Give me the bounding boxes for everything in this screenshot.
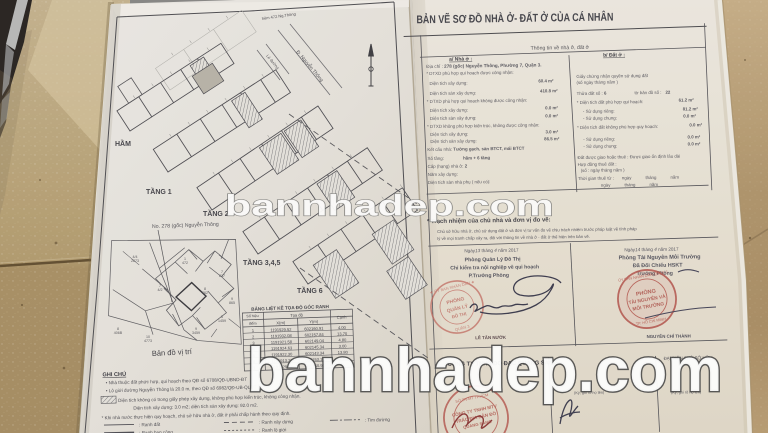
svg-text:bannhadep.com: bannhadep.com [225,188,554,222]
svg-text:bannhadep.com: bannhadep.com [247,336,722,405]
